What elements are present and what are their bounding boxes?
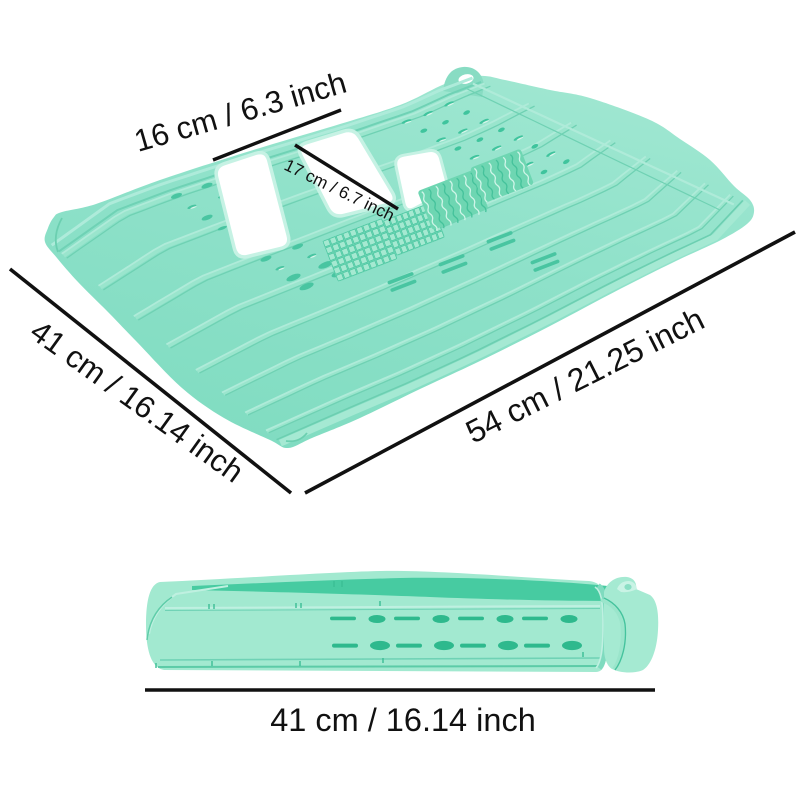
svg-text:41 cm / 16.14 inch: 41 cm / 16.14 inch [270,702,536,738]
